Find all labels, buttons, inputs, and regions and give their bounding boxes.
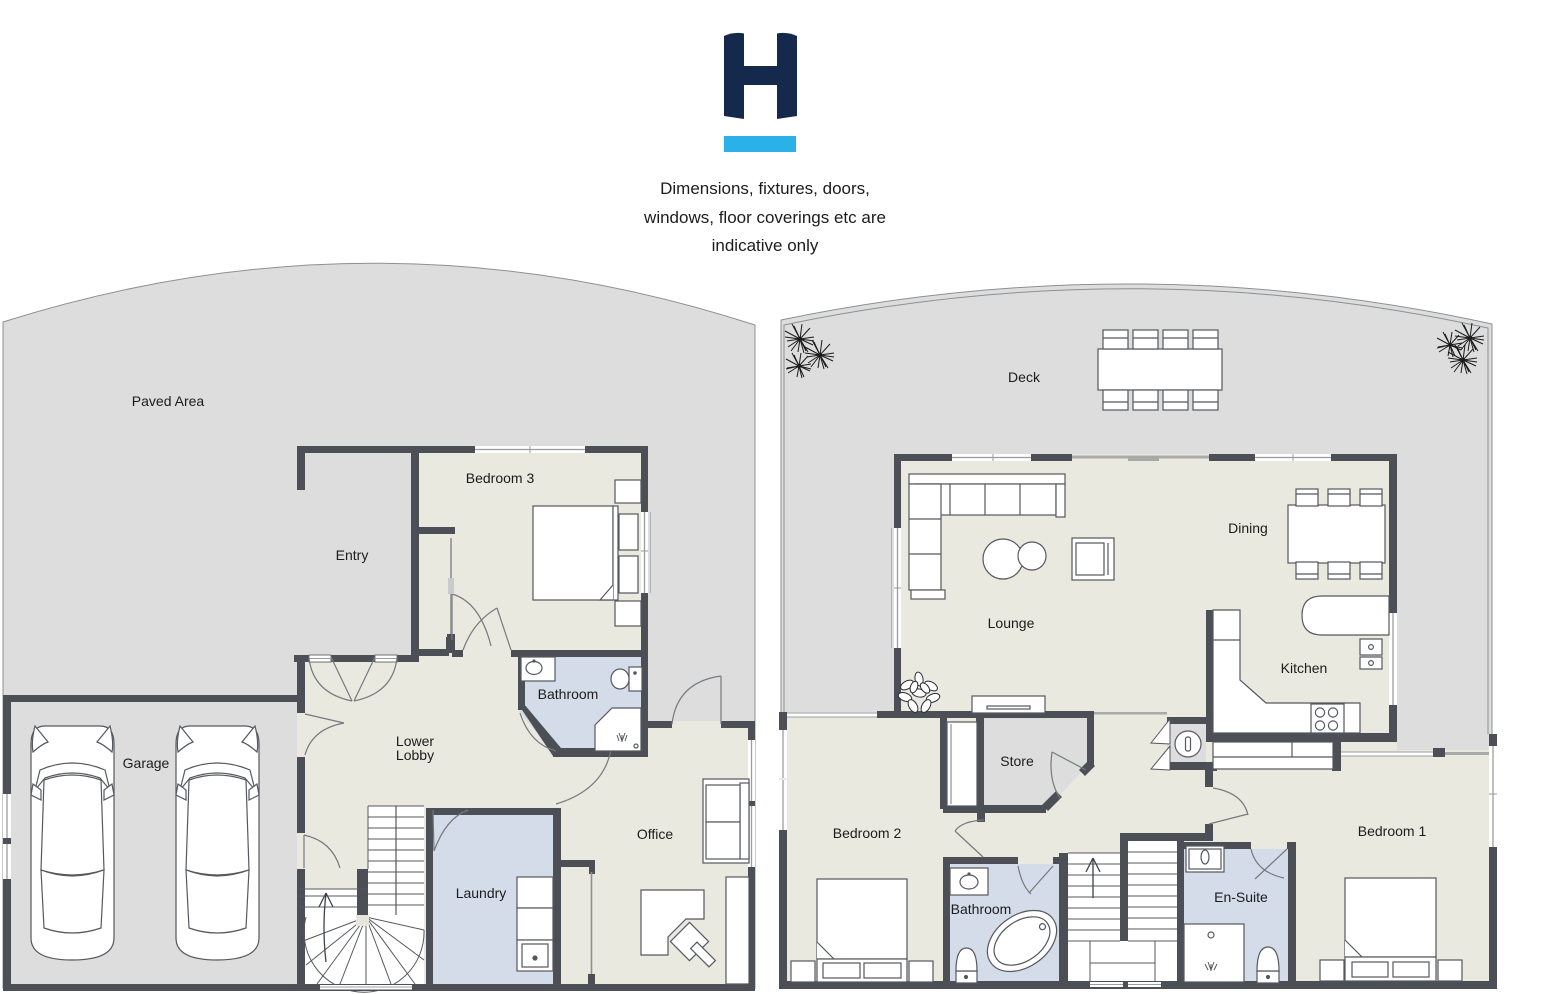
svg-text:Bedroom 1: Bedroom 1 [1358, 823, 1427, 839]
svg-text:Kitchen: Kitchen [1281, 660, 1328, 676]
svg-text:Office: Office [637, 826, 674, 842]
svg-text:Dimensions, fixtures, doors,: Dimensions, fixtures, doors, [660, 179, 870, 198]
svg-text:Entry: Entry [336, 547, 369, 563]
svg-text:Bedroom 3: Bedroom 3 [466, 470, 535, 486]
svg-text:windows, floor coverings etc a: windows, floor coverings etc are [643, 208, 886, 227]
svg-text:Laundry: Laundry [456, 885, 507, 901]
svg-text:Bathroom: Bathroom [538, 686, 599, 702]
svg-text:Bathroom: Bathroom [951, 901, 1012, 917]
svg-text:Lounge: Lounge [988, 615, 1035, 631]
svg-text:Paved Area: Paved Area [132, 393, 205, 409]
svg-text:Garage: Garage [123, 755, 170, 771]
svg-text:Bedroom 2: Bedroom 2 [833, 825, 902, 841]
svg-text:indicative only: indicative only [712, 236, 819, 255]
svg-text:En-Suite: En-Suite [1214, 889, 1268, 905]
svg-text:Store: Store [1000, 753, 1034, 769]
svg-text:Dining: Dining [1228, 520, 1268, 536]
svg-text:Lobby: Lobby [396, 747, 434, 763]
svg-text:Deck: Deck [1008, 369, 1041, 385]
